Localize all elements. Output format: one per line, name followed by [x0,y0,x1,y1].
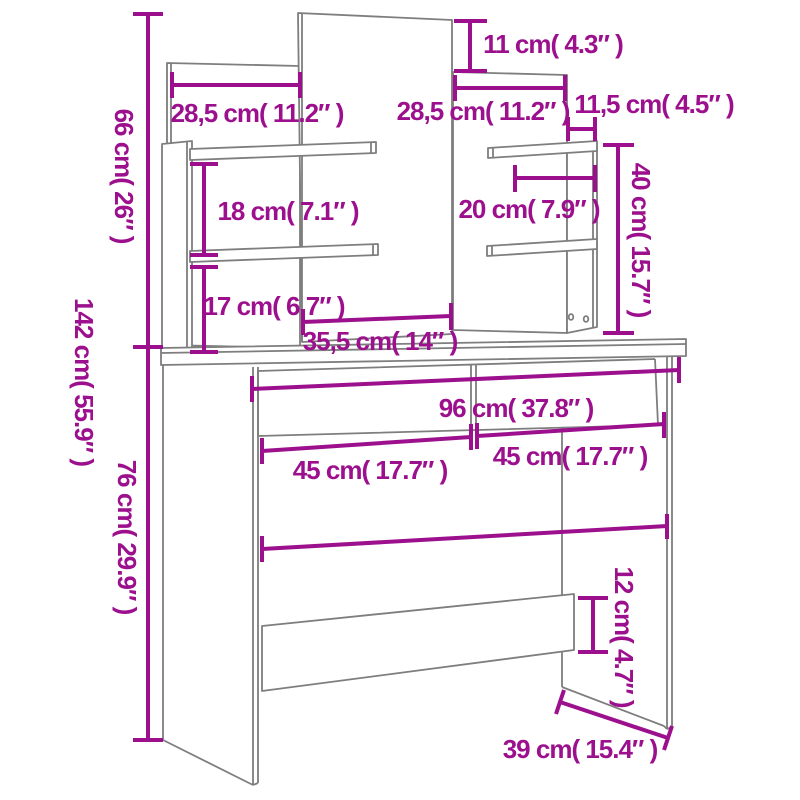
dim-28-5-right-label: 28,5 cm( 11.2″ ) [397,96,570,126]
dim-12-label: 12 cm( 4.7″ ) [609,566,639,707]
dim-11-line [454,21,487,71]
furniture-outline [161,13,686,785]
dim-96-label: 96 cm( 37.8″ ) [439,393,594,423]
dim-11-label: 11 cm( 4.3″ ) [483,29,623,59]
dim-11-group: 11 cm( 4.3″ ) [454,21,623,71]
dim-40-label: 40 cm( 15.7″ ) [626,163,656,318]
dim-12-line [578,598,608,652]
dim-17-label: 17 cm( 6.7″ ) [203,291,344,321]
dim-76-label: 76 cm( 29.9″ ) [112,460,142,615]
diagram-canvas: 66 cm( 26″ ) 142 cm( 55.9″ ) 76 cm( 29.9… [0,0,800,800]
dim-142-label: 142 cm( 55.9″ ) [69,298,99,466]
dim-39-label: 39 cm( 15.4″ ) [503,734,658,764]
dim-39-group: 39 cm( 15.4″ ) [503,690,672,764]
left-desk-panel [163,365,258,785]
dim-11-5-label: 11,5 cm( 4.5″ ) [574,89,734,119]
stretcher-beam [262,594,574,691]
dim-96-group: 96 cm( 37.8″ ) [252,357,679,423]
dim-11-5-group: 11,5 cm( 4.5″ ) [568,89,734,141]
dim-18-label: 18 cm( 7.1″ ) [217,196,358,226]
dimension-diagram: 66 cm( 26″ ) 142 cm( 55.9″ ) 76 cm( 29.9… [0,0,800,800]
dim-66-label: 66 cm( 26″ ) [109,109,139,244]
dim-45-left-label: 45 cm( 17.7″ ) [293,455,448,485]
dim-12-group: 12 cm( 4.7″ ) [578,566,639,707]
dim-height-group: 66 cm( 26″ ) 142 cm( 55.9″ ) 76 cm( 29.9… [69,14,163,740]
dim-45-right-label: 45 cm( 17.7″ ) [493,441,648,471]
dim-35-5-label: 35,5 cm( 14″ ) [303,326,458,356]
dim-11-5-line [568,117,595,141]
dim-40-group: 40 cm( 15.7″ ) [603,145,656,333]
dim-20-label: 20 cm( 7.9″ ) [458,194,599,224]
dim-28-5-left-label: 28,5 cm( 11.2″ ) [171,98,344,128]
dim-lower-width-line [262,514,667,562]
